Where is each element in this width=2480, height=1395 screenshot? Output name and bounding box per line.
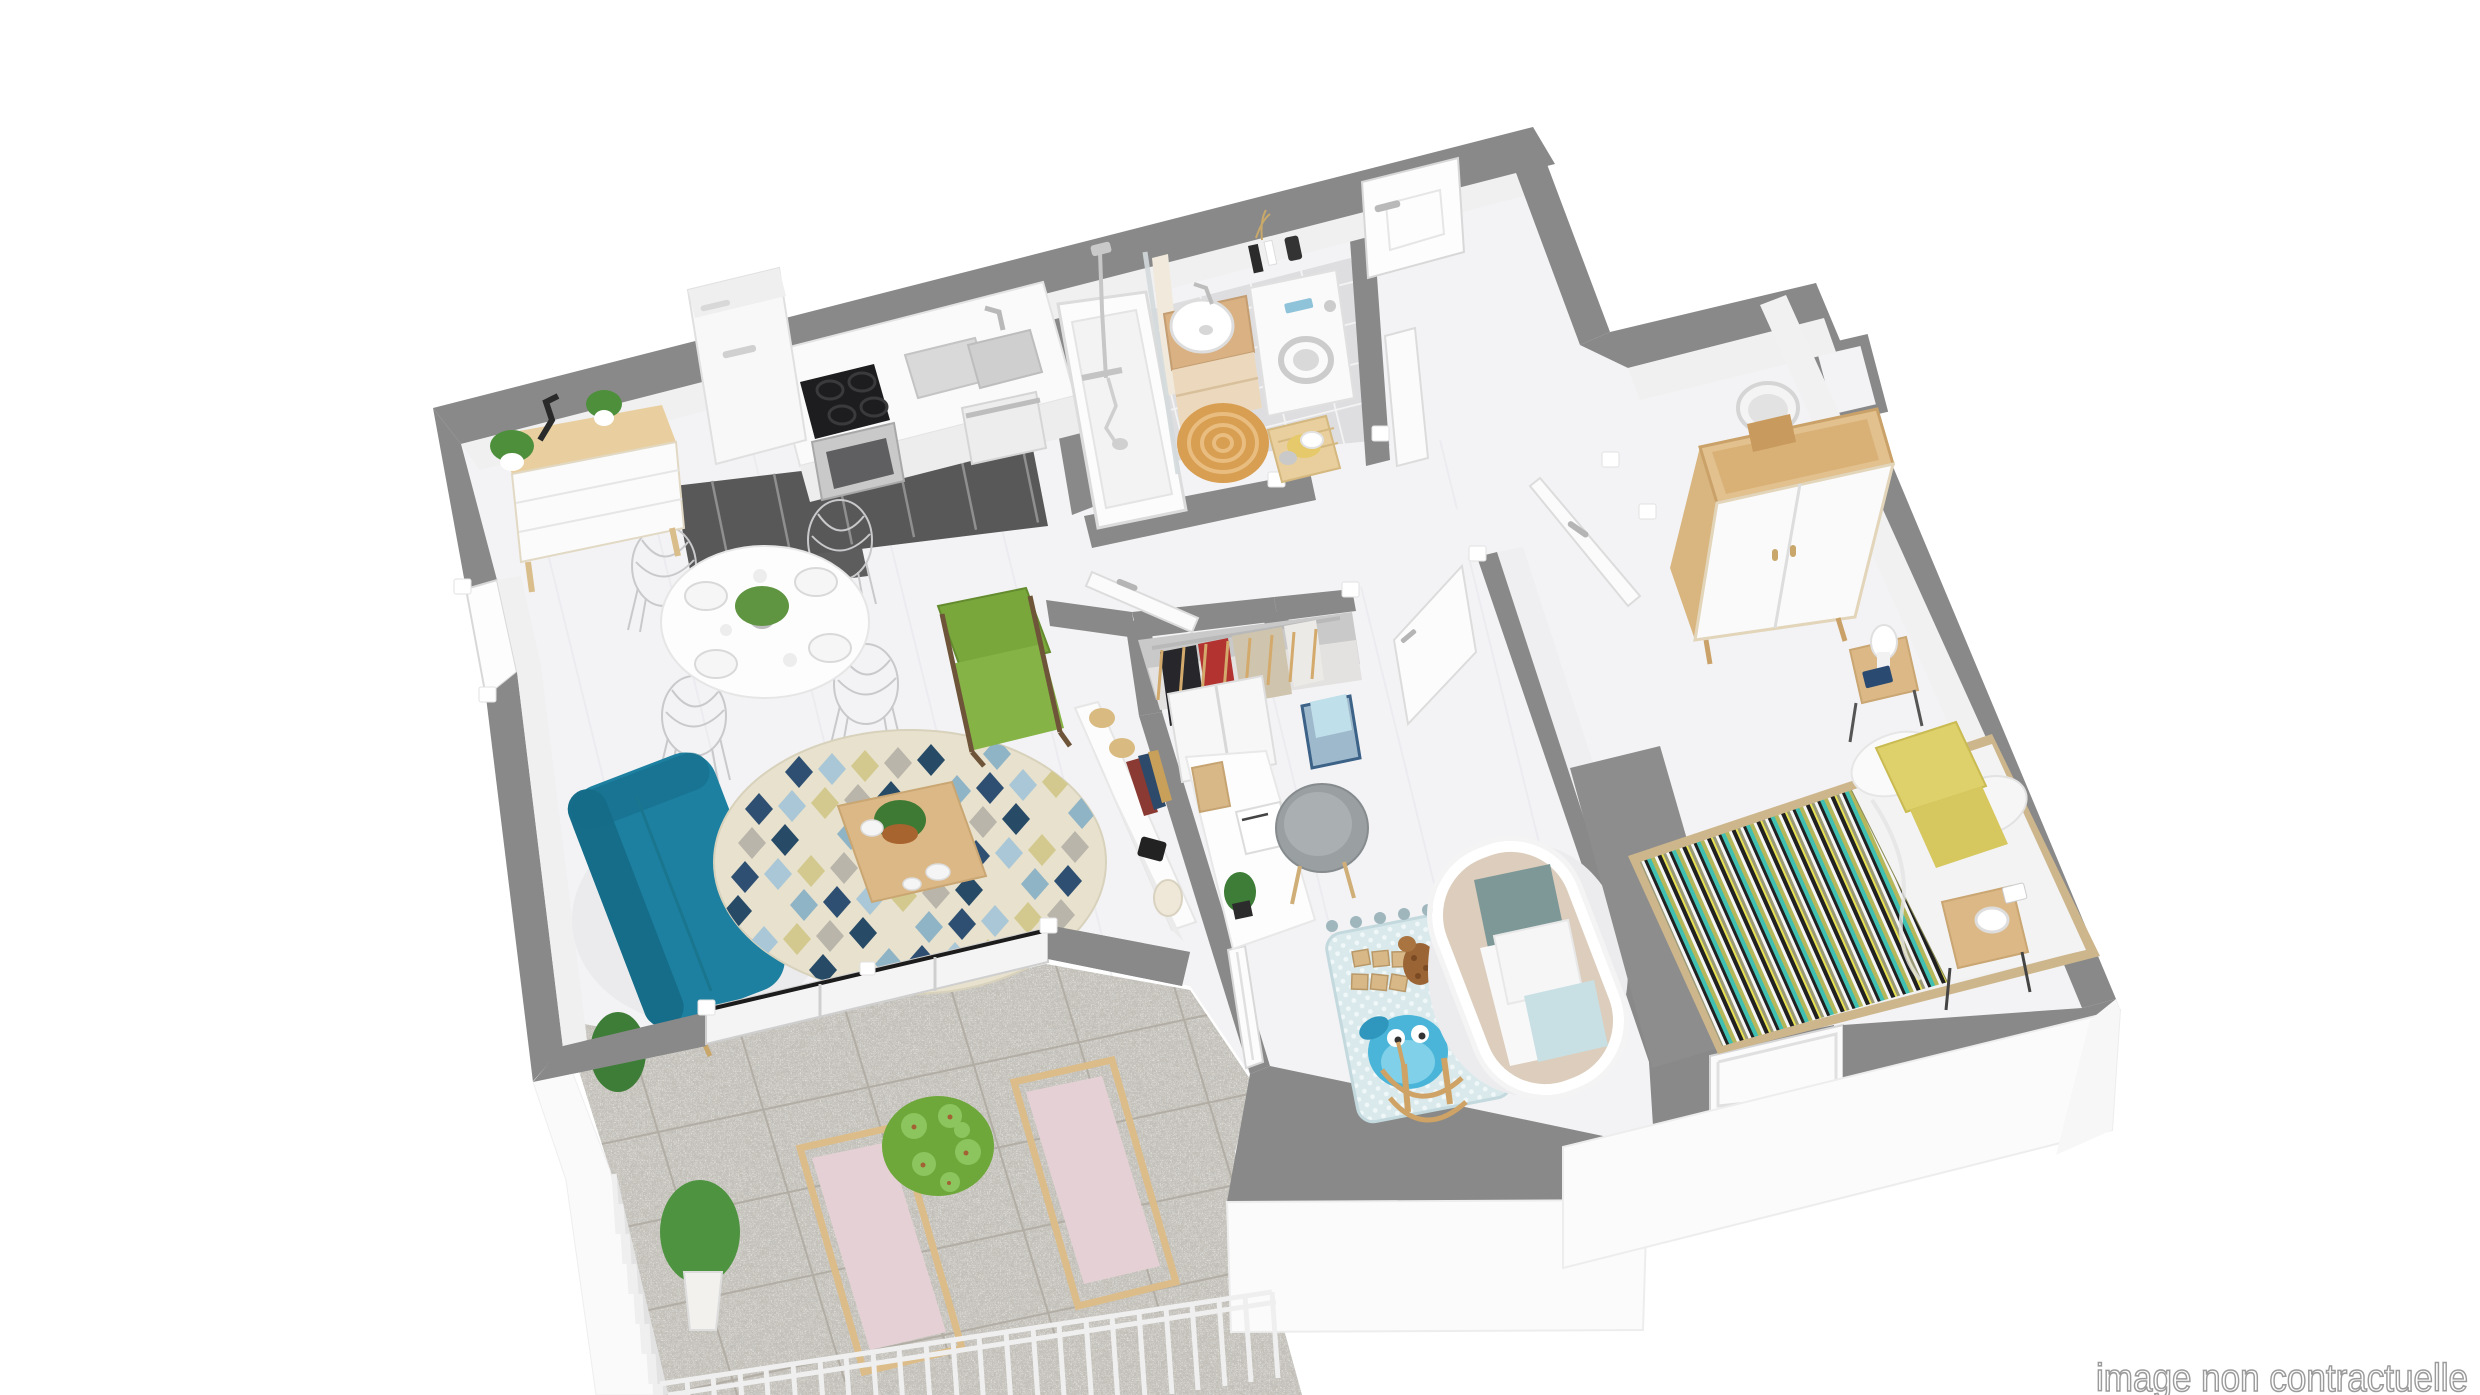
- svg-text:image non contractuelle: image non contractuelle: [2096, 1357, 2468, 1395]
